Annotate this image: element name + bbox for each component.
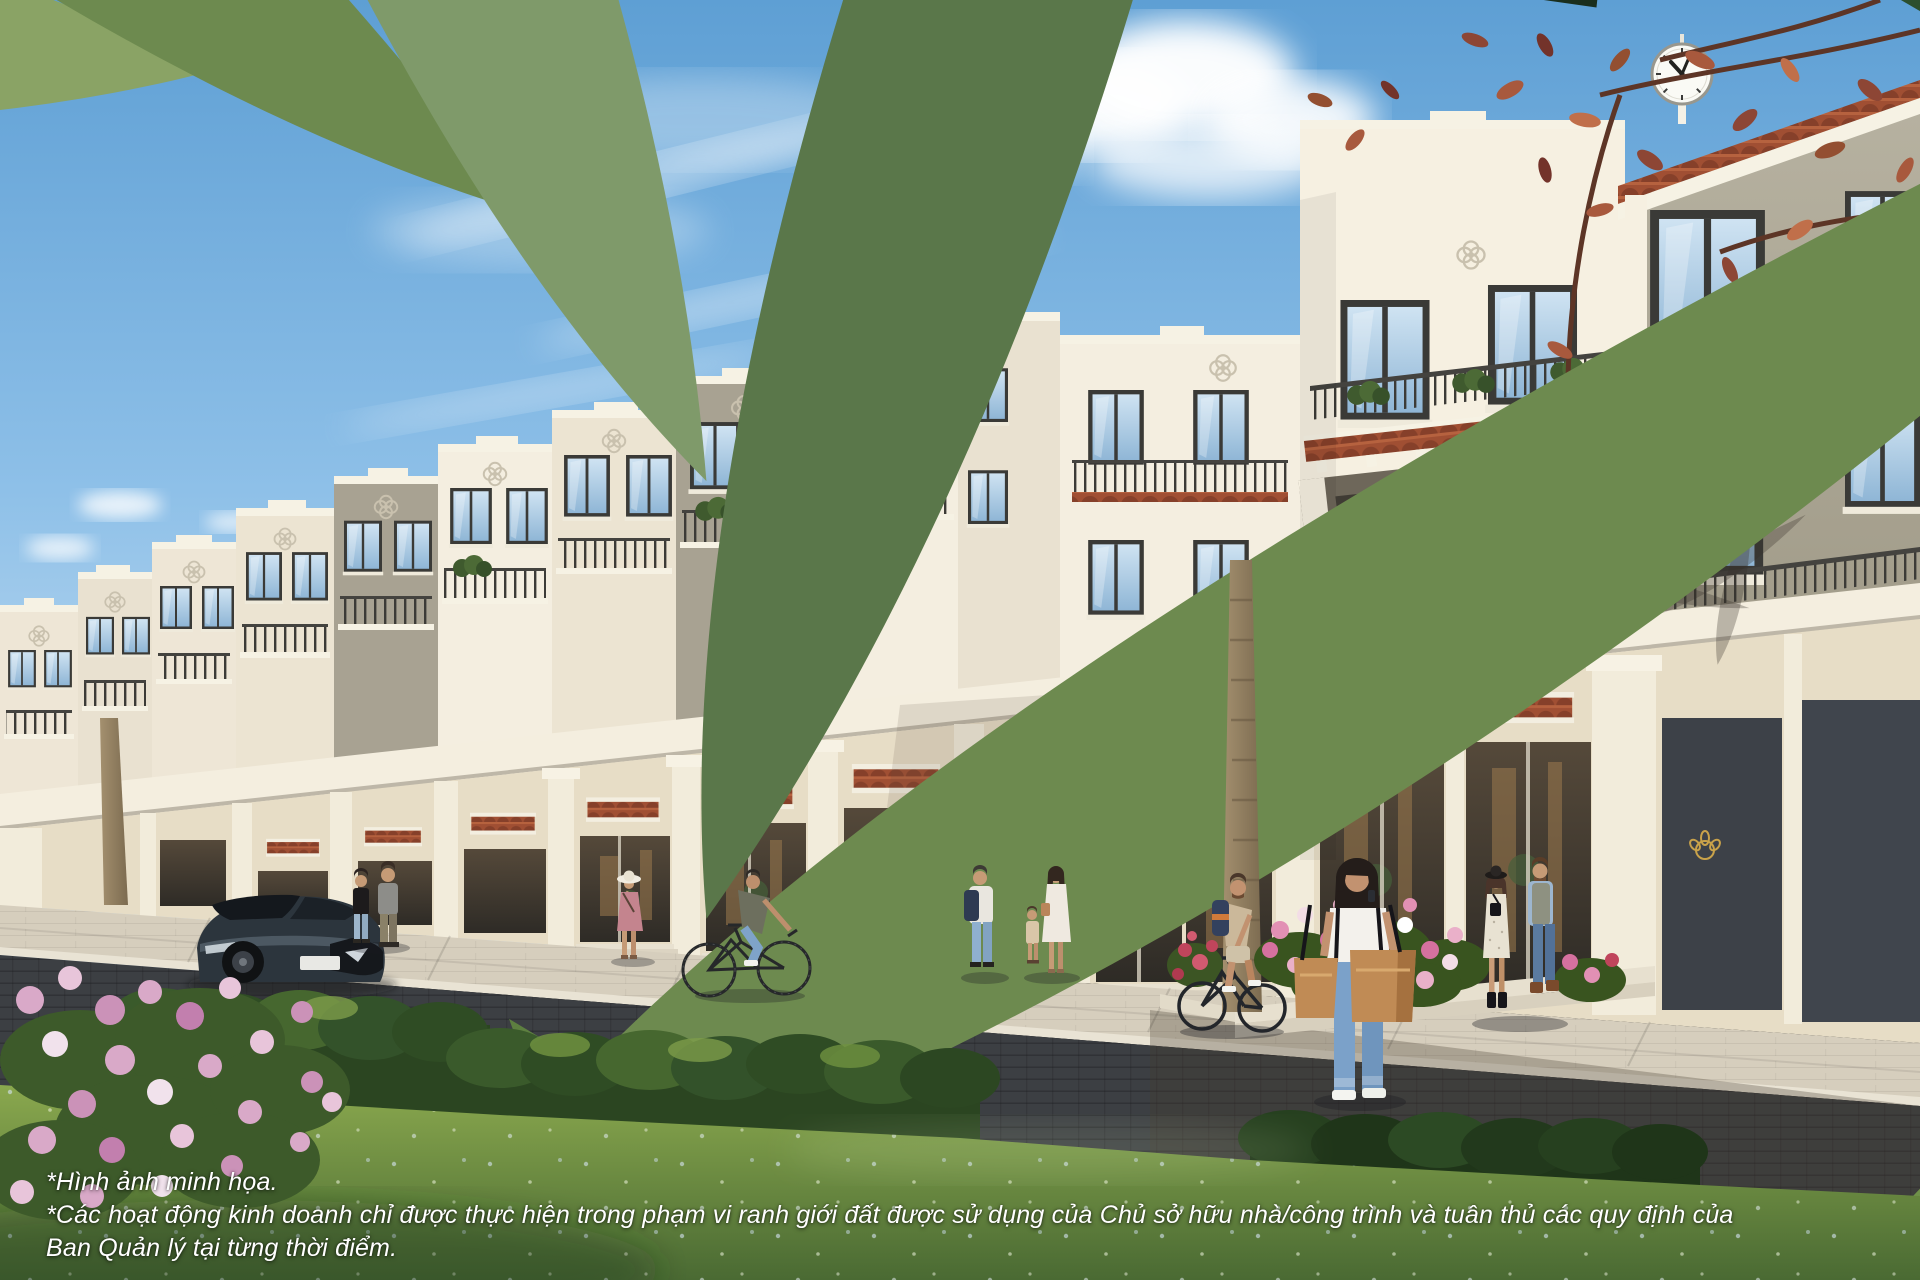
disclaimer-line-1: *Hình ảnh minh họa. xyxy=(46,1166,1734,1199)
architectural-rendering: *Hình ảnh minh họa. *Các hoạt động kinh … xyxy=(0,0,1920,1280)
disclaimer-line-2: *Các hoạt động kinh doanh chỉ được thực … xyxy=(46,1199,1734,1232)
car-wheel xyxy=(222,941,264,983)
streetscape-scene xyxy=(0,0,1920,1280)
disclaimer-text: *Hình ảnh minh họa. *Các hoạt động kinh … xyxy=(46,1166,1734,1265)
license-plate xyxy=(300,956,340,970)
disclaimer-line-3: Ban Quản lý tại từng thời điểm. xyxy=(46,1232,1734,1265)
